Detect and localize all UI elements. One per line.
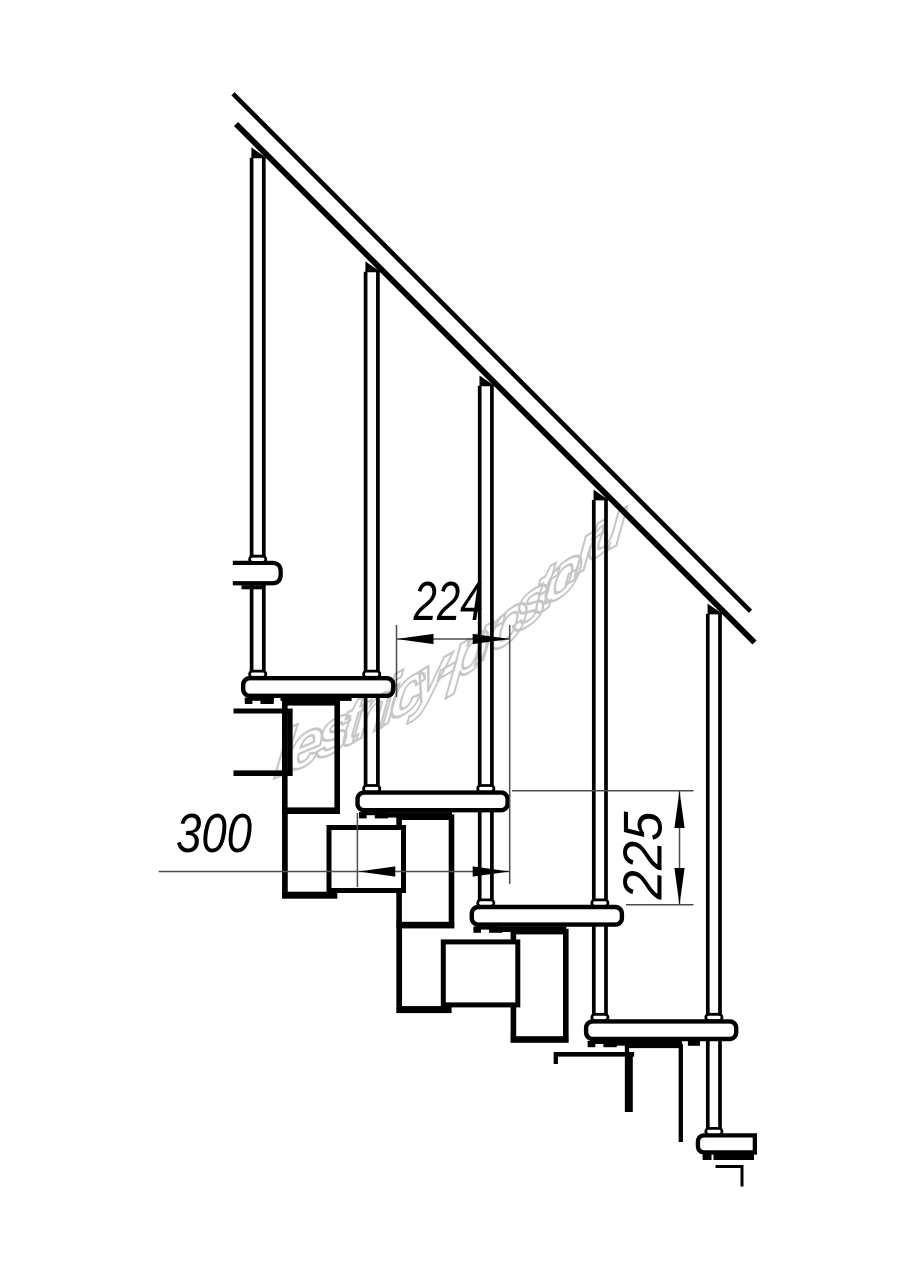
svg-text:300: 300 xyxy=(176,802,252,864)
svg-text:225: 225 xyxy=(612,811,674,900)
